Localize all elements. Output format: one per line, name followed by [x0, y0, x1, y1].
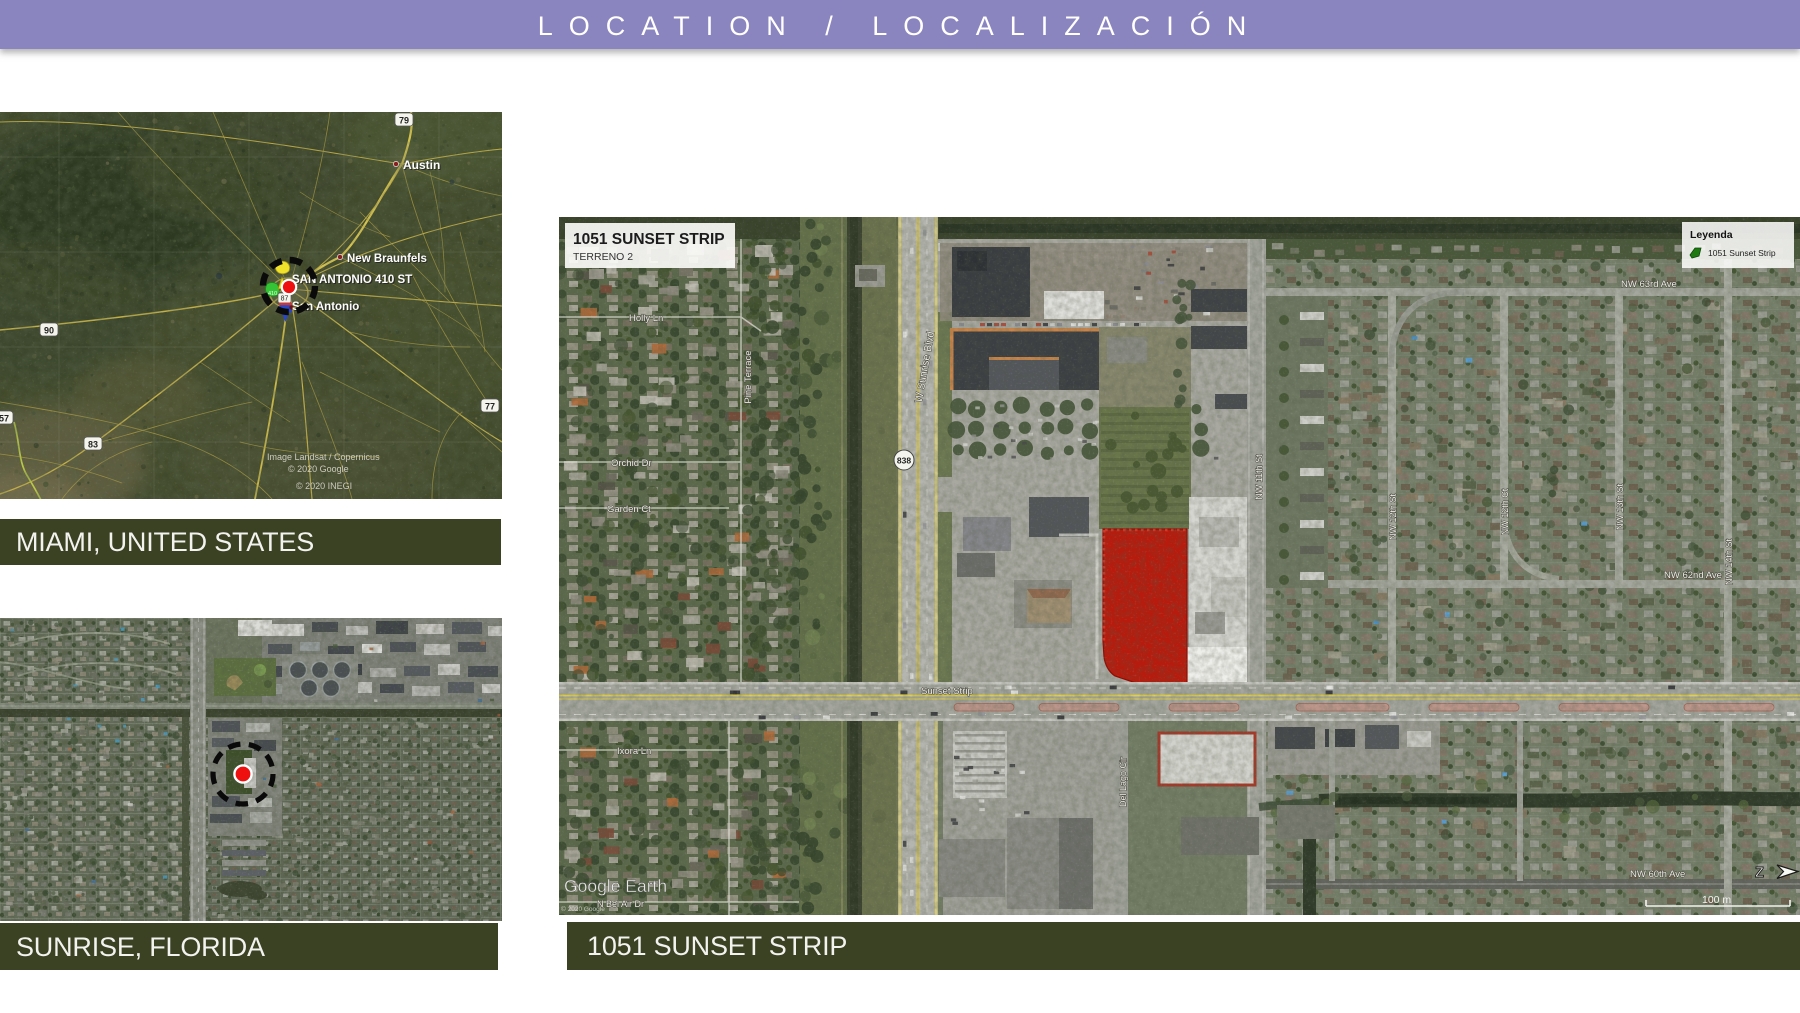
svg-text:Pine Terrace: Pine Terrace	[743, 350, 754, 403]
svg-text:NW 13th St: NW 13th St	[1615, 483, 1625, 530]
svg-text:NW 62nd Ave: NW 62nd Ave	[1664, 570, 1722, 581]
svg-text:TERRENO 2: TERRENO 2	[573, 251, 633, 263]
svg-text:87: 87	[281, 296, 289, 303]
svg-text:New Braunfels: New Braunfels	[347, 253, 427, 265]
svg-text:Z: Z	[1755, 865, 1764, 881]
svg-text:NW 12th St: NW 12th St	[1388, 493, 1398, 540]
svg-text:Google Earth: Google Earth	[564, 876, 667, 896]
svg-text:NW 63rd Ave: NW 63rd Ave	[1621, 279, 1677, 290]
svg-text:77: 77	[485, 402, 495, 412]
svg-text:NW 12th Ct: NW 12th Ct	[1500, 488, 1510, 535]
svg-text:100 m: 100 m	[1702, 894, 1731, 906]
svg-text:Sunset Strip: Sunset Strip	[921, 686, 973, 697]
svg-text:Holly Ln: Holly Ln	[629, 313, 663, 324]
svg-text:57: 57	[0, 414, 9, 424]
svg-text:90: 90	[44, 326, 54, 336]
svg-text:79: 79	[399, 116, 409, 126]
svg-text:Ixora Ln: Ixora Ln	[617, 746, 651, 757]
svg-text:© 2020 INEGI: © 2020 INEGI	[296, 481, 352, 491]
svg-text:NW 60th Ave: NW 60th Ave	[1630, 869, 1685, 880]
svg-text:Del Lago Cir: Del Lago Cir	[1118, 757, 1128, 807]
svg-text:Leyenda: Leyenda	[1690, 229, 1733, 241]
svg-text:Austin: Austin	[403, 158, 440, 172]
svg-text:NW 14th St: NW 14th St	[1724, 538, 1734, 585]
svg-text:Orchid Dr: Orchid Dr	[611, 458, 652, 469]
svg-text:83: 83	[88, 440, 98, 450]
svg-text:Image Landsat / Copernicus: Image Landsat / Copernicus	[267, 452, 380, 462]
svg-text:NW 11th St: NW 11th St	[1254, 454, 1264, 500]
svg-text:© 2020 Google: © 2020 Google	[561, 905, 605, 913]
svg-text:1051 Sunset Strip: 1051 Sunset Strip	[1708, 248, 1776, 258]
svg-text:© 2020 Google: © 2020 Google	[288, 464, 349, 474]
svg-text:410: 410	[268, 291, 277, 297]
svg-text:Garden Ct: Garden Ct	[607, 504, 651, 515]
svg-text:838: 838	[897, 456, 911, 466]
svg-text:1051 SUNSET STRIP: 1051 SUNSET STRIP	[573, 231, 725, 248]
